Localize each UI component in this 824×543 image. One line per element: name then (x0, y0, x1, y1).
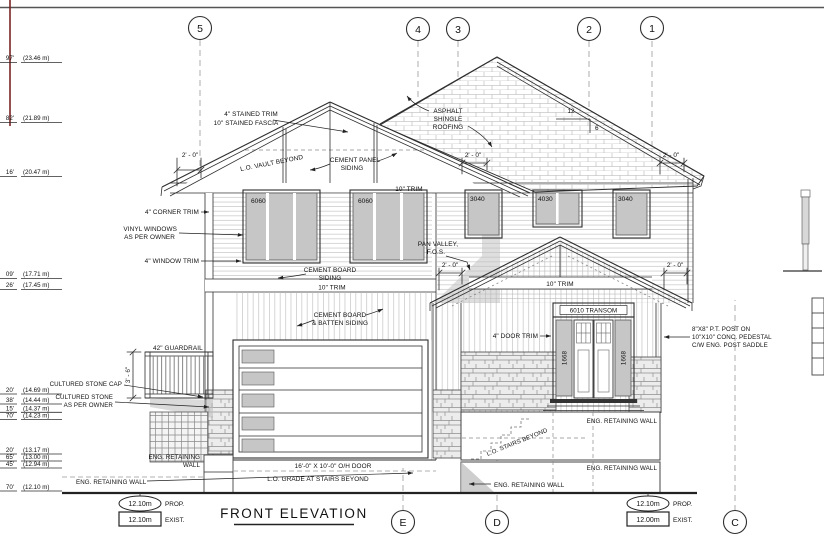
dim-label: 3' - 6" (125, 367, 132, 383)
elev-ft: 16' (6, 169, 14, 176)
right-edge-fragments (783, 190, 824, 375)
slope-run-label: 6 (595, 125, 599, 132)
elev-m: (13.17 m) (23, 447, 49, 454)
vinyl-windows-label-2: AS PER OWNER (124, 234, 175, 241)
eng-wall-left-label-2: WALL (183, 462, 200, 469)
dim-label: 2' - 0" (663, 152, 679, 159)
cement-panel-label-1: CEMENT PANEL (330, 157, 381, 164)
elev-m: (17.71 m) (23, 271, 49, 278)
eng-wall-upper-label: ENG. RETAINING WALL (587, 418, 658, 425)
grid-bubble-3-label: 3 (455, 24, 461, 36)
datum-right-prop-value: 12.10m (636, 501, 660, 508)
porch-trim-label: 10" TRIM (546, 281, 573, 288)
dim-label: 2' - 0" (182, 152, 198, 159)
datum-right: 12.10m PROP. 12.00m EXIST. (627, 493, 693, 526)
window-4030: 4030 (533, 190, 582, 227)
window-trim-label: 4" WINDOW TRIM (145, 258, 199, 265)
elev-m: (13.00 m) (23, 454, 49, 461)
garage-door-lites (242, 350, 274, 452)
datum-right-prop-label: PROP. (673, 501, 692, 508)
cement-board-label-2: SIDING (319, 275, 342, 282)
post-label-3: C/W ENG. POST SADDLE (692, 342, 768, 349)
elev-row: 65'(13.00 m) (0, 454, 62, 461)
cultured-stone-label-1: CULTURED STONE (55, 394, 113, 401)
grid-bubble-C: C (724, 511, 747, 534)
cultured-cap-label: CULTURED STONE CAP (50, 381, 122, 388)
grid-bubble-D: D (486, 511, 509, 534)
pan-valley-label-1: PAN VALLEY, (418, 241, 458, 248)
elev-ft: 82' (6, 115, 14, 122)
guardrail-label: 42" GUARDRAIL (153, 345, 203, 352)
oh-door-label: 16'-0" X 10'-0" O/H DOOR (295, 463, 372, 470)
drawing-title: FRONT ELEVATION (220, 506, 368, 525)
elev-row: 26'(17.45 m) (0, 282, 62, 290)
elev-ft: 45' (6, 461, 14, 468)
eng-wall-left-label-1: ENG. RETAINING (149, 454, 201, 461)
elev-m: (17.45 m) (23, 282, 49, 289)
transom-label: 6010 TRANSOM (570, 307, 618, 314)
elev-row: 38'(14.44 m) (0, 397, 62, 404)
elev-row: 15'(14.37 m) (0, 406, 62, 413)
datum-left-exist-label: EXIST. (165, 517, 185, 524)
corner-trim-label: 4" CORNER TRIM (145, 209, 199, 216)
elev-row: 09'(17.71 m) (0, 271, 62, 279)
elev-ft: 70' (6, 413, 14, 420)
window-6060-left: 6060 (243, 190, 320, 263)
door-leaf-left (574, 320, 593, 398)
asphalt-label-1: ASPHALT (433, 108, 462, 115)
left-retaining-wall (204, 455, 233, 493)
post-label-1: 8"X8" P.T. POST ON (692, 326, 750, 333)
datum-left-prop-value: 12.10m (128, 501, 152, 508)
dim-label: 2' - 0" (667, 262, 683, 269)
window-4030-label: 4030 (538, 196, 553, 203)
cement-panel-label-2: SIDING (341, 165, 364, 172)
window-3040-right: 3040 (613, 190, 650, 238)
grid-bubble-E-label: E (399, 517, 406, 529)
elev-row: 20'(13.17 m) (0, 447, 62, 454)
grid-bubble-D-label: D (493, 517, 501, 529)
post-label-2: 10"X10" CONC. PEDESTAL (692, 334, 772, 341)
elev-ft: 38' (6, 397, 14, 404)
elev-m: (21.89 m) (23, 115, 49, 122)
upper-trim-label: 10" TRIM (395, 186, 422, 193)
cultured-stone-label-2: AS PER OWNER (64, 402, 114, 409)
elev-row: 70'(14.23 m) (0, 413, 62, 420)
elev-m: (12.10 m) (23, 484, 49, 491)
grid-bubble-4-label: 4 (415, 24, 421, 36)
sidelight-right-label: 1668 (621, 350, 628, 365)
grid-bubble-4: 4 (407, 18, 430, 41)
window-3040-left: 3040 (465, 190, 502, 238)
garage-door (233, 340, 428, 458)
grid-bubble-E: E (392, 511, 415, 534)
grid-bubble-1-label: 1 (649, 23, 655, 35)
datum-left-prop-label: PROP. (165, 501, 184, 508)
grid-bubble-2: 2 (578, 18, 601, 41)
eng-wall-arrow-label: ENG. RETAINING WALL (494, 482, 565, 489)
eng-wall-bottomleft-label: ENG. RETAINING WALL (76, 479, 147, 486)
cement-board-label-1: CEMENT BOARD (304, 267, 357, 274)
elev-ft: 20' (6, 387, 14, 394)
elev-m: (20.47 m) (23, 169, 49, 176)
elev-row: 97'(23.46 m) (0, 55, 62, 63)
threshold (550, 399, 637, 403)
elev-ft: 09' (6, 271, 14, 278)
door-trim-label: 4" DOOR TRIM (493, 333, 538, 340)
eng-wall-lower-label: ENG. RETAINING WALL (587, 465, 658, 472)
drawing-title-text: FRONT ELEVATION (220, 506, 368, 521)
house-elevation: 10" TRIM (62, 57, 704, 493)
datum-right-exist-label: EXIST. (673, 517, 693, 524)
lo-grade-label: L.O. GRADE AT STAIRS BEYOND (267, 476, 369, 483)
elev-ft: 20' (6, 447, 14, 454)
dim-label: 2' - 0" (442, 262, 458, 269)
elev-row: 16'(20.47 m) (0, 169, 62, 177)
left-band-trim-label: 10" TRIM (318, 285, 345, 292)
window-3040-left-label: 3040 (470, 196, 485, 203)
elev-m: (14.37 m) (23, 406, 49, 413)
right-retaining-walls: L.O. STAIRS BEYOND ENG. RETAINING WALL E… (461, 412, 660, 493)
datum-left-exist-value: 12.10m (128, 517, 152, 524)
sidelight-left-label: 1668 (562, 350, 569, 365)
vinyl-windows-label-1: VINYL WINDOWS (123, 226, 177, 233)
edge-table-fragment (812, 298, 824, 375)
elev-row: 45'(12.94 m) (0, 461, 62, 468)
stained-trim-label-2: 10" STAINED FASCIA (214, 120, 279, 127)
dim-guardrail-height: 3' - 6" (125, 349, 141, 401)
stone-pier (206, 390, 233, 454)
batten-label-2: & BATTEN SIDING (312, 320, 368, 327)
elevation-datum-column: 97'(23.46 m) 82'(21.89 m) 16'(20.47 m) 0… (0, 55, 62, 491)
elev-m: (12.94 m) (23, 461, 49, 468)
elev-ft: 65' (6, 454, 14, 461)
elevation-drawing-sheet: 5 4 3 2 1 E D C 10" TRIM (0, 0, 824, 543)
elev-row: 82'(21.89 m) (0, 115, 62, 123)
window-3040-right-label: 3040 (618, 196, 633, 203)
elev-ft: 97' (6, 55, 14, 62)
asphalt-label-3: ROOFING (433, 124, 464, 131)
elev-m: (14.23 m) (23, 413, 49, 420)
batten-label-1: CEMENT BOARD (314, 312, 367, 319)
elev-m: (14.69 m) (23, 387, 49, 394)
elev-ft: 70' (6, 484, 14, 491)
elev-ft: 26' (6, 282, 14, 289)
pan-valley-label-2: F.O.S. (427, 249, 445, 256)
elev-row: 70'(12.10 m) (0, 484, 62, 491)
grid-bubble-1: 1 (641, 17, 664, 40)
slope-rise-label: 12 (567, 108, 575, 115)
stained-trim-label-1: 4" STAINED TRIM (224, 111, 278, 118)
window-6060-left-label: 6060 (251, 198, 266, 205)
datum-left: 12.10m PROP. 12.10m EXIST. (119, 493, 185, 526)
elev-m: (14.44 m) (23, 397, 49, 404)
grid-bubble-3: 3 (447, 18, 470, 41)
elev-row: 20'(14.69 m) (0, 387, 62, 394)
window-6060-right: 6060 (350, 190, 427, 263)
window-6060-right-label: 6060 (358, 198, 373, 205)
grid-bubble-2-label: 2 (586, 24, 592, 36)
door-leaf-right (594, 320, 613, 398)
grid-bubble-5: 5 (189, 17, 212, 40)
post-cap (801, 190, 810, 197)
datum-right-exist-value: 12.00m (636, 517, 660, 524)
grid-bubble-C-label: C (731, 517, 739, 529)
drawing-canvas: 5 4 3 2 1 E D C 10" TRIM (0, 0, 824, 543)
elev-ft: 15' (6, 406, 14, 413)
guardrail-balusters (150, 356, 208, 394)
elev-m: (23.46 m) (23, 55, 49, 62)
asphalt-label-2: SHINGLE (434, 116, 463, 123)
edge-post (802, 197, 809, 244)
dim-label: 2' - 0" (465, 152, 481, 159)
grid-bubble-5-label: 5 (197, 23, 203, 35)
